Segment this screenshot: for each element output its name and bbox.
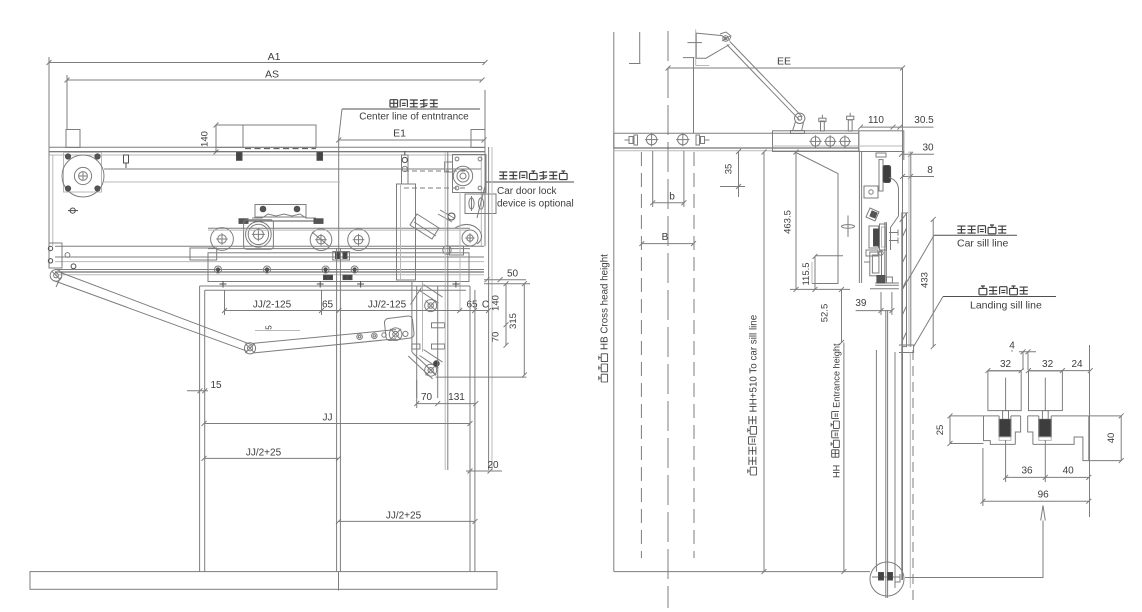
svg-text:5: 5 [265, 325, 274, 330]
svg-text:30.5: 30.5 [914, 115, 934, 126]
svg-text:32: 32 [1000, 359, 1012, 370]
svg-text:JJ: JJ [323, 413, 333, 424]
svg-text:52.5: 52.5 [820, 304, 831, 323]
svg-text:Landing sill line: Landing sill line [970, 300, 1042, 312]
svg-text:device is optional: device is optional [497, 199, 574, 210]
svg-text:110: 110 [868, 115, 884, 126]
svg-text:140: 140 [491, 295, 502, 311]
svg-text:40: 40 [1063, 466, 1075, 477]
svg-text:AS: AS [265, 69, 279, 81]
svg-text:131: 131 [448, 392, 465, 403]
svg-text:Center line of entntrance: Center line of entntrance [359, 112, 469, 123]
svg-text:E1: E1 [393, 128, 406, 140]
svg-text:Car door lock: Car door lock [497, 186, 557, 197]
svg-text:HB Cross head height: HB Cross head height [600, 254, 611, 350]
svg-text:433: 433 [919, 272, 930, 288]
svg-text:65: 65 [322, 300, 334, 311]
svg-text:24: 24 [1071, 359, 1083, 370]
svg-text:39: 39 [855, 298, 867, 309]
svg-text:40: 40 [1106, 433, 1117, 444]
svg-text:HH+510 To car sill line: HH+510 To car sill line [749, 314, 760, 412]
svg-text:50: 50 [507, 269, 519, 280]
svg-text:Car sill line: Car sill line [957, 238, 1009, 250]
svg-text:JJ/2+25: JJ/2+25 [246, 448, 282, 459]
svg-text:JJ/2-125: JJ/2-125 [368, 300, 407, 311]
svg-text:70: 70 [491, 332, 502, 343]
svg-text:A1: A1 [268, 51, 281, 63]
svg-text:35: 35 [724, 164, 735, 175]
svg-text:315: 315 [508, 313, 519, 329]
svg-text:96: 96 [1038, 490, 1050, 501]
svg-text:30: 30 [922, 143, 934, 154]
svg-text:15: 15 [210, 380, 222, 391]
svg-text:70: 70 [421, 392, 433, 403]
svg-text:4: 4 [1009, 341, 1015, 352]
svg-text:463.5: 463.5 [783, 210, 794, 234]
svg-text:JJ/2-125: JJ/2-125 [253, 300, 292, 311]
svg-text:Entrance height: Entrance height [832, 343, 842, 408]
svg-text:EE: EE [777, 56, 791, 68]
svg-text:HH: HH [832, 465, 842, 478]
svg-text:36: 36 [1021, 466, 1033, 477]
svg-text:65: 65 [466, 300, 478, 311]
svg-text:B: B [662, 232, 669, 243]
svg-text:32: 32 [1042, 359, 1054, 370]
svg-text:b: b [669, 192, 675, 203]
svg-text:115.5: 115.5 [801, 262, 812, 285]
svg-text:140: 140 [200, 131, 211, 147]
svg-text:C: C [482, 300, 489, 311]
svg-text:25: 25 [935, 425, 946, 436]
svg-text:JJ/2+25: JJ/2+25 [386, 511, 422, 522]
svg-text:20: 20 [487, 460, 499, 471]
svg-text:8: 8 [927, 165, 933, 176]
